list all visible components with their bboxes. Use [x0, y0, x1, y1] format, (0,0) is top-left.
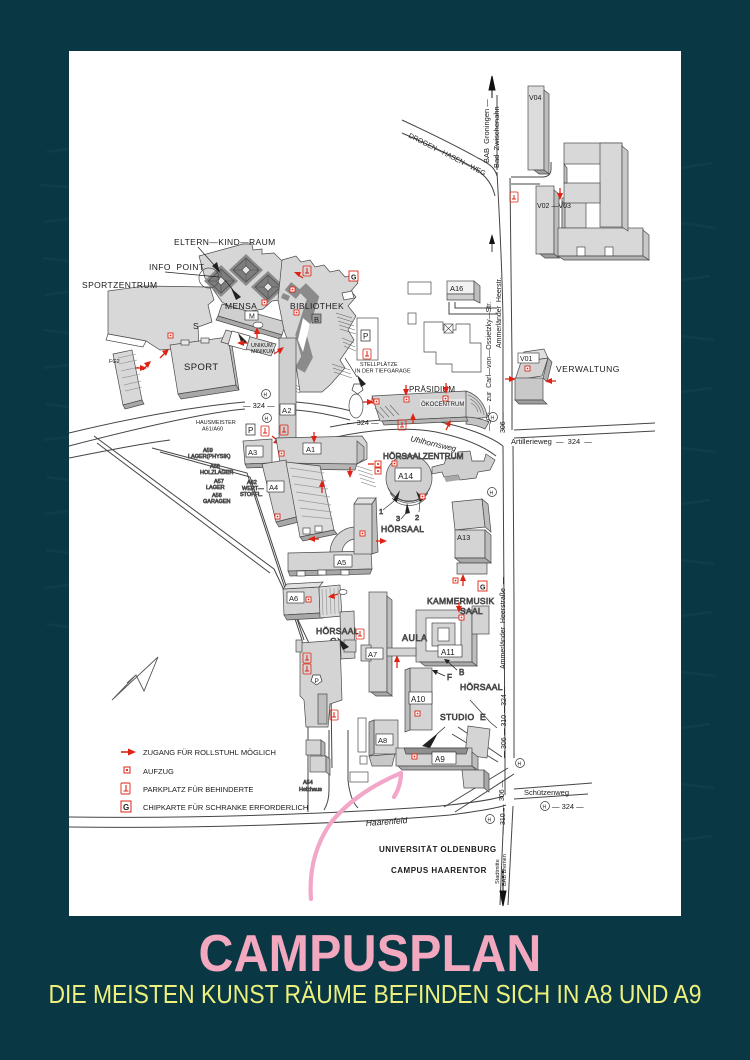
- svg-text:H: H: [490, 491, 494, 497]
- svg-text:HAUSMEISTER: HAUSMEISTER: [196, 420, 236, 426]
- svg-text:— 324 —: — 324 —: [243, 401, 275, 410]
- svg-text:STELLPLÄTZE: STELLPLÄTZE: [360, 361, 398, 368]
- svg-text:CAMPUS HAARENTOR: CAMPUS HAARENTOR: [391, 866, 487, 875]
- svg-text:A61/A60: A61/A60: [202, 427, 223, 433]
- svg-text:A2: A2: [282, 406, 292, 415]
- svg-text:STUDIO E: STUDIO E: [440, 712, 486, 722]
- svg-text:AULA: AULA: [402, 633, 428, 643]
- svg-text:PRÄSIDIUM: PRÄSIDIUM: [409, 385, 455, 394]
- svg-text:306 —: 306 —: [500, 412, 507, 433]
- svg-text:FG2: FG2: [109, 359, 120, 365]
- svg-text:ÖKOCENTRUM: ÖKOCENTRUM: [421, 401, 464, 408]
- svg-text:A54: A54: [303, 780, 313, 786]
- svg-text:H: H: [488, 818, 492, 824]
- svg-text:Ammerländer Heerstraße —: Ammerländer Heerstraße —: [500, 577, 507, 669]
- svg-text:P: P: [363, 332, 368, 341]
- svg-text:A13: A13: [457, 533, 470, 542]
- svg-text:— 324 —: — 324 —: [552, 802, 584, 811]
- svg-text:H: H: [265, 417, 269, 423]
- svg-text:MINIKUM: MINIKUM: [251, 349, 275, 355]
- svg-text:V04: V04: [529, 95, 542, 102]
- svg-text:P: P: [248, 426, 254, 435]
- svg-text:A14: A14: [398, 471, 413, 481]
- svg-text:A5: A5: [337, 558, 346, 567]
- svg-text:V02 —V03: V02 —V03: [537, 203, 571, 210]
- svg-text:Schützenweg: Schützenweg: [524, 788, 569, 797]
- svg-text:B: B: [314, 315, 319, 324]
- svg-text:306 —: 306 —: [499, 780, 506, 801]
- svg-text:—306— zur Carl—von—Ossietzky: —306— zur Carl—von—Ossietzky—Str.: [486, 302, 493, 431]
- svg-text:HÖRSAALZENTRUM: HÖRSAALZENTRUM: [383, 451, 464, 461]
- svg-text:STOFFL.: STOFFL.: [240, 492, 263, 498]
- svg-text:CHIPKARTE FÜR SCHRANKE ERFORDE: CHIPKARTE FÜR SCHRANKE ERFORDERLICH: [143, 803, 308, 812]
- svg-text:— 324 —: — 324 —: [347, 418, 379, 427]
- svg-text:M: M: [249, 314, 255, 321]
- svg-text:A11: A11: [441, 648, 455, 657]
- svg-text:3: 3: [396, 514, 400, 523]
- svg-text:Ammerländer Heerstr.: Ammerländer Heerstr.: [496, 278, 503, 348]
- svg-text:A3: A3: [248, 448, 257, 457]
- svg-text:— 306 — 310 —324—: — 306 — 310 —324—: [501, 687, 508, 758]
- svg-text:AUFZUG: AUFZUG: [143, 767, 174, 776]
- svg-text:ELTERN—KIND—RAUM: ELTERN—KIND—RAUM: [174, 237, 276, 247]
- svg-text:BAB Groningen —: BAB Groningen —: [482, 99, 491, 163]
- svg-text:Uhlhornsweg: Uhlhornsweg: [410, 434, 458, 453]
- svg-text:HÖRSAAL: HÖRSAAL: [460, 682, 503, 692]
- svg-text:BAB Bremen: BAB Bremen: [502, 854, 508, 886]
- svg-text:1: 1: [379, 507, 383, 516]
- svg-text:G: G: [480, 585, 486, 592]
- svg-text:Artillerieweg — 324 —: Artillerieweg — 324 —: [511, 437, 592, 446]
- svg-text:HOLZLAGER: HOLZLAGER: [200, 470, 233, 476]
- svg-text:MENSA: MENSA: [225, 301, 257, 311]
- svg-text:A7: A7: [368, 650, 377, 659]
- svg-text:SPORTZENTRUM: SPORTZENTRUM: [82, 280, 157, 290]
- svg-text:A16: A16: [450, 284, 463, 293]
- svg-text:UNIVERSITÄT OLDENBURG: UNIVERSITÄT OLDENBURG: [379, 845, 497, 854]
- svg-text:F: F: [447, 673, 452, 682]
- svg-text:BIBLIOTHEK: BIBLIOTHEK: [290, 301, 344, 311]
- svg-text:SPORT: SPORT: [184, 362, 219, 373]
- svg-text:2: 2: [415, 513, 419, 522]
- svg-text:— 310 —: — 310 —: [500, 804, 507, 834]
- svg-text:A4: A4: [269, 483, 278, 492]
- svg-text:A6: A6: [289, 594, 298, 603]
- svg-text:KAMMERMUSIK: KAMMERMUSIK: [427, 596, 495, 606]
- svg-text:Heizhaus: Heizhaus: [299, 787, 322, 793]
- svg-text:DROGEN—HASEN—WEG: DROGEN—HASEN—WEG: [407, 133, 486, 178]
- svg-text:LAGER(PHYSIK): LAGER(PHYSIK): [188, 454, 231, 460]
- svg-text:A10: A10: [411, 695, 426, 704]
- svg-text:GARAGEN: GARAGEN: [203, 499, 231, 505]
- svg-text:Haarenfeld: Haarenfeld: [365, 815, 407, 828]
- svg-text:A1: A1: [306, 445, 315, 454]
- svg-text:H: H: [491, 416, 495, 422]
- svg-text:SAAL: SAAL: [460, 606, 483, 616]
- svg-text:Bad Zwischenahn: Bad Zwischenahn: [492, 106, 501, 168]
- svg-text:LAGER: LAGER: [206, 485, 225, 491]
- svg-text:H: H: [264, 393, 268, 399]
- svg-text:HÖRSAAL: HÖRSAAL: [316, 626, 359, 636]
- svg-text:PARKPLATZ FÜR BEHINDERTE: PARKPLATZ FÜR BEHINDERTE: [143, 785, 253, 794]
- svg-text:P: P: [315, 678, 319, 685]
- svg-text:H: H: [518, 762, 522, 768]
- svg-text:G: G: [351, 275, 357, 282]
- svg-text:VERWALTUNG: VERWALTUNG: [556, 364, 620, 374]
- svg-text:A8: A8: [378, 736, 387, 745]
- svg-text:S: S: [193, 321, 199, 331]
- svg-text:G: G: [123, 803, 129, 812]
- svg-text:INFO POINT: INFO POINT: [149, 262, 204, 272]
- svg-text:HÖRSAAL: HÖRSAAL: [381, 524, 424, 534]
- svg-text:B: B: [459, 668, 464, 677]
- svg-text:A9: A9: [435, 755, 445, 764]
- svg-text:IN DER TIEFGARAGE: IN DER TIEFGARAGE: [355, 369, 411, 375]
- svg-text:V01: V01: [520, 356, 533, 363]
- svg-text:H: H: [543, 805, 547, 811]
- svg-text:ZUGANG FÜR ROLLSTUHL MÖGLICH: ZUGANG FÜR ROLLSTUHL MÖGLICH: [143, 748, 276, 757]
- svg-text:Stadtmitte: Stadtmitte: [495, 859, 501, 884]
